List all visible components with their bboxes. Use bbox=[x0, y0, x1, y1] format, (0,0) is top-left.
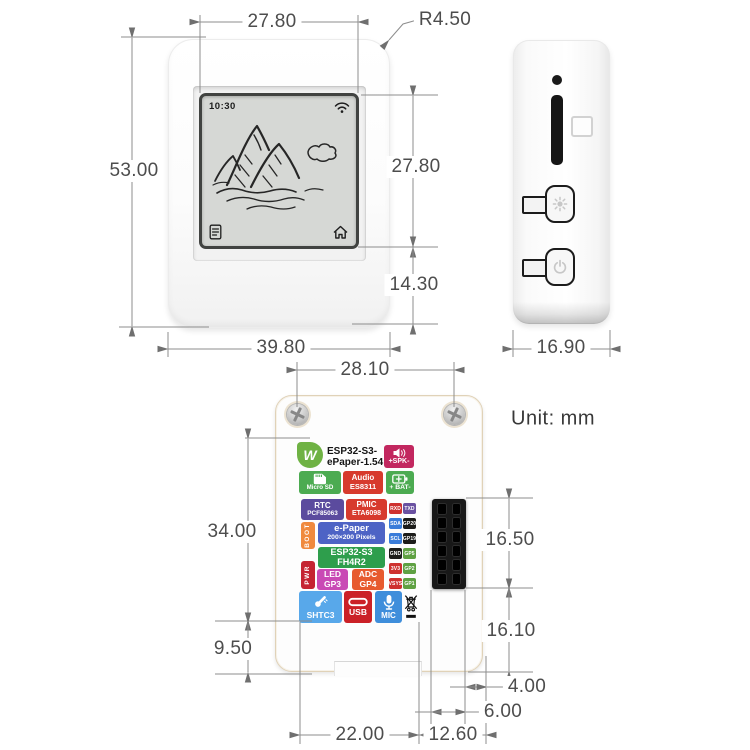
screw-right bbox=[441, 401, 469, 429]
dim-front-screen-width: 27.80 bbox=[242, 11, 301, 33]
pin-hole bbox=[438, 574, 446, 584]
label-rtc: RTC PCF85063 bbox=[301, 499, 344, 520]
label-shtc3: SHTC3 bbox=[299, 591, 342, 623]
sd-card-outline bbox=[571, 116, 593, 137]
dimension-diagram: 10:30 bbox=[0, 0, 750, 750]
battery-icon bbox=[392, 474, 408, 484]
pin-label: 3V3 bbox=[389, 563, 402, 574]
side-button-bottom-tab bbox=[522, 259, 547, 277]
dim-corner-radius: R4.50 bbox=[414, 9, 476, 31]
dim-header-width: 6.00 bbox=[479, 701, 527, 723]
pin-label: RXD bbox=[389, 503, 402, 514]
pin-header bbox=[432, 499, 466, 589]
brightness-button-icon bbox=[552, 196, 568, 212]
dim-bottom-right-span: 12.60 bbox=[423, 724, 482, 746]
bottom-notch bbox=[334, 661, 422, 676]
dim-screen-to-bottom: 14.30 bbox=[384, 274, 443, 296]
pin-hole bbox=[438, 532, 446, 542]
front-view-device: 10:30 bbox=[168, 39, 390, 328]
label-battery: + BAT- bbox=[386, 471, 414, 494]
home-icon bbox=[332, 225, 349, 240]
dim-side-depth: 16.90 bbox=[531, 337, 590, 359]
label-usb: USB bbox=[344, 591, 372, 623]
label-sticker: W ESP32-S3- ePaper-1.54 +SPK- bbox=[297, 442, 418, 624]
sd-card-slot bbox=[551, 95, 563, 165]
pin-hole bbox=[453, 504, 461, 514]
thermometer-icon bbox=[312, 593, 329, 610]
dim-header-edge-gap: 4.00 bbox=[503, 676, 551, 698]
dim-corner-radius-leader bbox=[389, 20, 417, 40]
usb-c-icon bbox=[348, 597, 368, 607]
board-title: ESP32-S3- ePaper-1.54 bbox=[327, 446, 387, 468]
dim-header-to-bottom: 16.10 bbox=[481, 620, 540, 642]
unit-label: Unit: mm bbox=[511, 408, 595, 431]
pin-hole bbox=[438, 504, 446, 514]
dim-screw-spacing: 28.10 bbox=[335, 359, 394, 381]
side-button-top-tab bbox=[522, 196, 547, 214]
label-esp32: ESP32-S3 FH4R2 bbox=[318, 547, 385, 568]
label-led-gp3: LED GP3 bbox=[317, 569, 348, 590]
side-button-bottom bbox=[545, 248, 575, 286]
label-pwr: PWR bbox=[301, 561, 315, 589]
pin-label: SDA bbox=[389, 518, 402, 529]
pin-legend: RXD TXD SDA GP20 SCL GP19 GND GP5 3V3 GP… bbox=[389, 503, 416, 593]
label-adc-gp4: ADC GP4 bbox=[352, 569, 384, 590]
dim-bottom-left-span: 22.00 bbox=[330, 724, 389, 746]
pin-hole bbox=[453, 574, 461, 584]
screw-left bbox=[284, 401, 312, 429]
pin-label: GP2 bbox=[403, 563, 416, 574]
label-epaper: e-Paper 200×200 Pixels bbox=[318, 522, 385, 544]
pin-label: VSYS bbox=[389, 578, 402, 589]
pin-hole bbox=[438, 546, 446, 556]
pin-label: GND bbox=[389, 548, 402, 559]
pin-hole bbox=[453, 518, 461, 528]
pin-hole bbox=[438, 518, 446, 528]
waveshare-logo: W bbox=[297, 442, 323, 468]
weee-icon bbox=[404, 591, 418, 623]
side-bottom-lip bbox=[513, 302, 610, 324]
reset-hole bbox=[552, 75, 562, 85]
back-view-device: W ESP32-S3- ePaper-1.54 +SPK- bbox=[275, 395, 483, 672]
pin-label: GP20 bbox=[403, 518, 416, 529]
mountain-artwork bbox=[205, 113, 352, 215]
pin-label: SCL bbox=[389, 533, 402, 544]
pin-hole bbox=[453, 546, 461, 556]
label-audio-es8311: Audio ES8311 bbox=[343, 471, 383, 494]
dim-header-height: 16.50 bbox=[480, 529, 539, 551]
dim-label-to-bottom: 9.50 bbox=[209, 638, 257, 660]
dim-screen-height: 27.80 bbox=[386, 156, 445, 178]
label-pmic: PMIC ETA6098 bbox=[346, 499, 387, 520]
pin-label: GP19 bbox=[403, 533, 416, 544]
pin-hole bbox=[438, 560, 446, 570]
power-button-icon bbox=[552, 259, 568, 275]
label-micro-sd: Micro SD bbox=[299, 471, 341, 494]
epaper-screen: 10:30 bbox=[199, 93, 359, 249]
notes-icon bbox=[209, 224, 222, 240]
microphone-icon bbox=[381, 594, 397, 611]
label-mic: MIC bbox=[375, 591, 402, 623]
label-boot: BOOT bbox=[301, 522, 315, 549]
label-speaker: +SPK- bbox=[384, 445, 414, 468]
dim-front-height: 53.00 bbox=[104, 160, 163, 182]
speaker-icon bbox=[393, 448, 406, 458]
side-view-device bbox=[513, 40, 610, 324]
pin-label: TXD bbox=[403, 503, 416, 514]
screen-time: 10:30 bbox=[209, 101, 236, 112]
pin-label: GP1 bbox=[403, 578, 416, 589]
dim-front-width: 39.80 bbox=[251, 337, 310, 359]
side-button-top bbox=[545, 185, 575, 223]
pin-hole bbox=[453, 532, 461, 542]
pin-hole bbox=[453, 560, 461, 570]
pin-label: GP5 bbox=[403, 548, 416, 559]
dim-label-area-height: 34.00 bbox=[202, 521, 261, 543]
